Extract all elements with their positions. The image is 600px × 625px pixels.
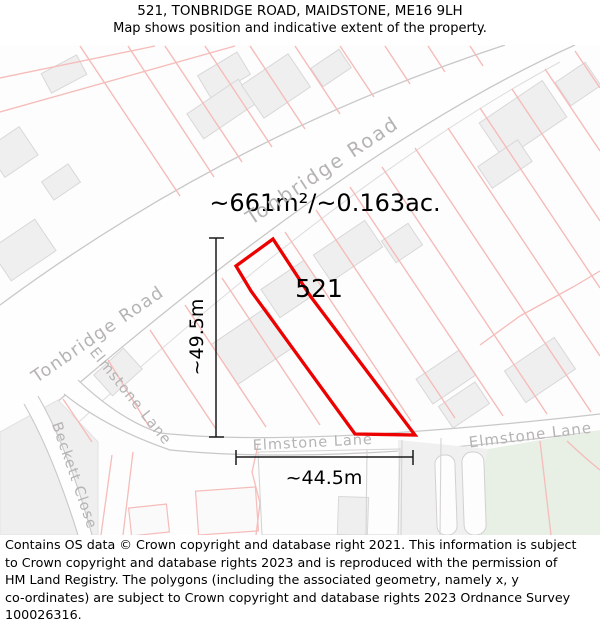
title-block: 521, TONBRIDGE ROAD, MAIDSTONE, ME16 9LH…	[0, 0, 600, 45]
footer-line: 100026316.	[5, 606, 599, 624]
footer-line: HM Land Registry. The polygons (includin…	[5, 571, 599, 589]
driveway-strip	[462, 452, 487, 535]
building	[337, 496, 368, 535]
footer-line: to Crown copyright and database rights 2…	[5, 554, 599, 572]
map-container: ~661m²/~0.163ac. 521 ~49.5m ~44.5m Tonbr…	[0, 45, 600, 535]
page-subtitle: Map shows position and indicative extent…	[0, 20, 600, 37]
copyright-footer: Contains OS data © Crown copyright and d…	[0, 536, 599, 625]
vertical-dimension-label: ~49.5m	[186, 299, 208, 376]
parcel-number-label: 521	[295, 274, 343, 303]
horizontal-dimension-label: ~44.5m	[286, 467, 363, 489]
property-map: ~661m²/~0.163ac. 521 ~49.5m ~44.5m Tonbr…	[0, 45, 600, 535]
footer-line: co-ordinates) are subject to Crown copyr…	[5, 589, 599, 607]
building-pink-outline	[196, 487, 259, 535]
building-pink-outline	[129, 504, 170, 535]
page-title: 521, TONBRIDGE ROAD, MAIDSTONE, ME16 9LH	[0, 0, 600, 20]
driveway-strip	[435, 455, 458, 535]
footer-line: Contains OS data © Crown copyright and d…	[5, 536, 599, 554]
page: { "title": { "line1": "521, TONBRIDGE RO…	[0, 0, 600, 625]
